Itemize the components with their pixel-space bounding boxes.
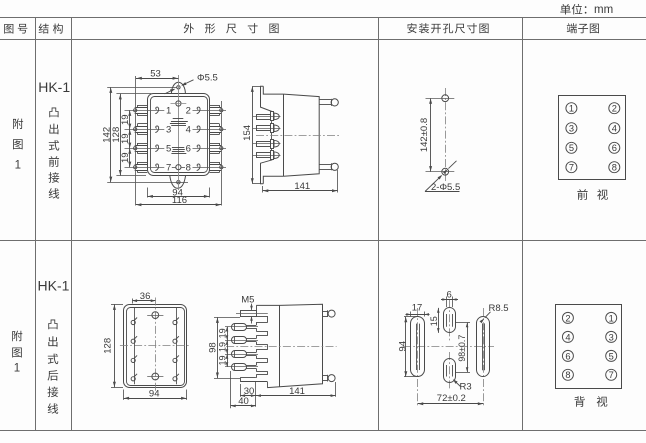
svg-text:5: 5 bbox=[569, 143, 574, 153]
svg-text:HK-1: HK-1 bbox=[38, 79, 70, 95]
svg-text:4: 4 bbox=[186, 125, 191, 136]
svg-text:R3: R3 bbox=[460, 382, 472, 393]
svg-text:141: 141 bbox=[294, 181, 310, 192]
svg-text:M5: M5 bbox=[241, 295, 254, 306]
svg-text:R8.5: R8.5 bbox=[489, 303, 509, 314]
svg-text:19: 19 bbox=[218, 342, 228, 352]
svg-text:1: 1 bbox=[569, 104, 574, 114]
svg-text:2: 2 bbox=[186, 106, 191, 117]
svg-text:2: 2 bbox=[565, 313, 570, 323]
svg-text:94: 94 bbox=[149, 389, 160, 400]
svg-text:116: 116 bbox=[172, 195, 187, 206]
svg-text:19: 19 bbox=[120, 152, 131, 163]
svg-text:30: 30 bbox=[244, 386, 255, 397]
svg-text:1: 1 bbox=[609, 313, 614, 323]
svg-text:1: 1 bbox=[14, 363, 20, 375]
svg-text:3: 3 bbox=[609, 332, 614, 342]
svg-text:40: 40 bbox=[238, 396, 249, 407]
svg-text:1: 1 bbox=[166, 106, 171, 117]
svg-text:7: 7 bbox=[569, 163, 574, 173]
svg-text:6: 6 bbox=[612, 143, 617, 153]
svg-text:4: 4 bbox=[565, 332, 570, 342]
svg-text:3: 3 bbox=[166, 125, 171, 136]
svg-text:53: 53 bbox=[150, 69, 161, 80]
svg-text:8: 8 bbox=[565, 370, 570, 380]
svg-text:154: 154 bbox=[242, 125, 253, 141]
svg-text:2-Φ5.5: 2-Φ5.5 bbox=[431, 182, 460, 193]
svg-text:3: 3 bbox=[569, 124, 574, 134]
svg-text:6: 6 bbox=[186, 144, 191, 155]
svg-text:17: 17 bbox=[412, 303, 423, 314]
svg-text:8: 8 bbox=[186, 163, 191, 174]
svg-text:5: 5 bbox=[609, 351, 614, 361]
svg-text:141: 141 bbox=[289, 386, 305, 397]
svg-text:19: 19 bbox=[218, 355, 228, 365]
svg-text:mm: mm bbox=[594, 4, 613, 16]
svg-text:5: 5 bbox=[166, 144, 171, 155]
svg-text:Φ5.5: Φ5.5 bbox=[197, 73, 218, 84]
svg-text:19: 19 bbox=[218, 328, 228, 338]
svg-text:15: 15 bbox=[429, 316, 439, 326]
svg-text:1: 1 bbox=[15, 160, 21, 172]
svg-text:2: 2 bbox=[612, 104, 617, 114]
svg-text:19: 19 bbox=[120, 114, 131, 125]
svg-text:142±0.8: 142±0.8 bbox=[419, 118, 430, 152]
svg-text:128: 128 bbox=[102, 338, 113, 354]
svg-text:36: 36 bbox=[140, 291, 151, 302]
svg-text:7: 7 bbox=[166, 163, 171, 174]
svg-text:72±0.2: 72±0.2 bbox=[437, 393, 466, 404]
svg-text:6: 6 bbox=[565, 351, 570, 361]
svg-text:8: 8 bbox=[612, 163, 617, 173]
svg-text:HK-1: HK-1 bbox=[38, 277, 70, 293]
svg-text:4: 4 bbox=[612, 124, 617, 134]
svg-text:98±0.7: 98±0.7 bbox=[457, 335, 467, 362]
svg-text:7: 7 bbox=[609, 370, 614, 380]
svg-text:19: 19 bbox=[120, 133, 131, 144]
svg-text:6: 6 bbox=[447, 289, 452, 300]
svg-text:94: 94 bbox=[398, 341, 409, 352]
